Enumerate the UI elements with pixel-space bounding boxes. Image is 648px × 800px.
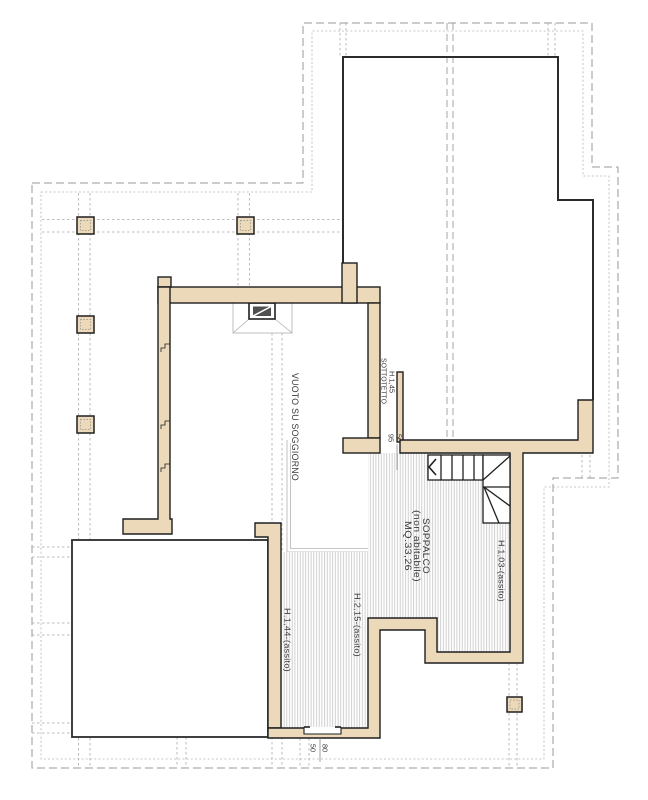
mezzanine-floor-hatch — [281, 453, 510, 728]
column — [237, 217, 254, 234]
wall-top-notch — [158, 277, 171, 287]
column — [77, 416, 94, 433]
height-corridor-label: H.2,15-(assito) — [353, 593, 362, 657]
floor-plan-drawing: VUOTO SU SOGGIORNO H.1,45 SOTTOTETTO 50 … — [0, 0, 648, 800]
wall-stub-top — [342, 263, 357, 303]
floor-plan-canvas: VUOTO SU SOGGIORNO H.1,45 SOTTOTETTO 50 … — [0, 0, 648, 800]
door-side-dim: 50 — [309, 744, 318, 752]
lower-terrace-outline — [72, 540, 268, 737]
wall-left — [123, 287, 172, 534]
opening-side-dim: 95 — [387, 434, 396, 442]
attic-name-label: SOTTOTETTO — [380, 358, 389, 404]
column — [77, 217, 94, 234]
height-left-wall-label: H.1,44-(assito) — [283, 608, 292, 672]
wall-right — [368, 303, 380, 438]
door-width-dim: 80 — [321, 744, 330, 752]
column — [507, 697, 522, 712]
mezzanine-area-label: MQ.33,26 — [403, 521, 413, 571]
column — [77, 316, 94, 333]
wall-thin-partition — [397, 372, 403, 442]
wall-stub-band — [343, 438, 380, 453]
roof-axis-line — [447, 23, 453, 440]
height-east-wall-label: H.1,03-(assito) — [497, 540, 506, 602]
void-room-label: VUOTO SU SOGGIORNO — [290, 373, 300, 481]
door-opening — [304, 727, 341, 734]
